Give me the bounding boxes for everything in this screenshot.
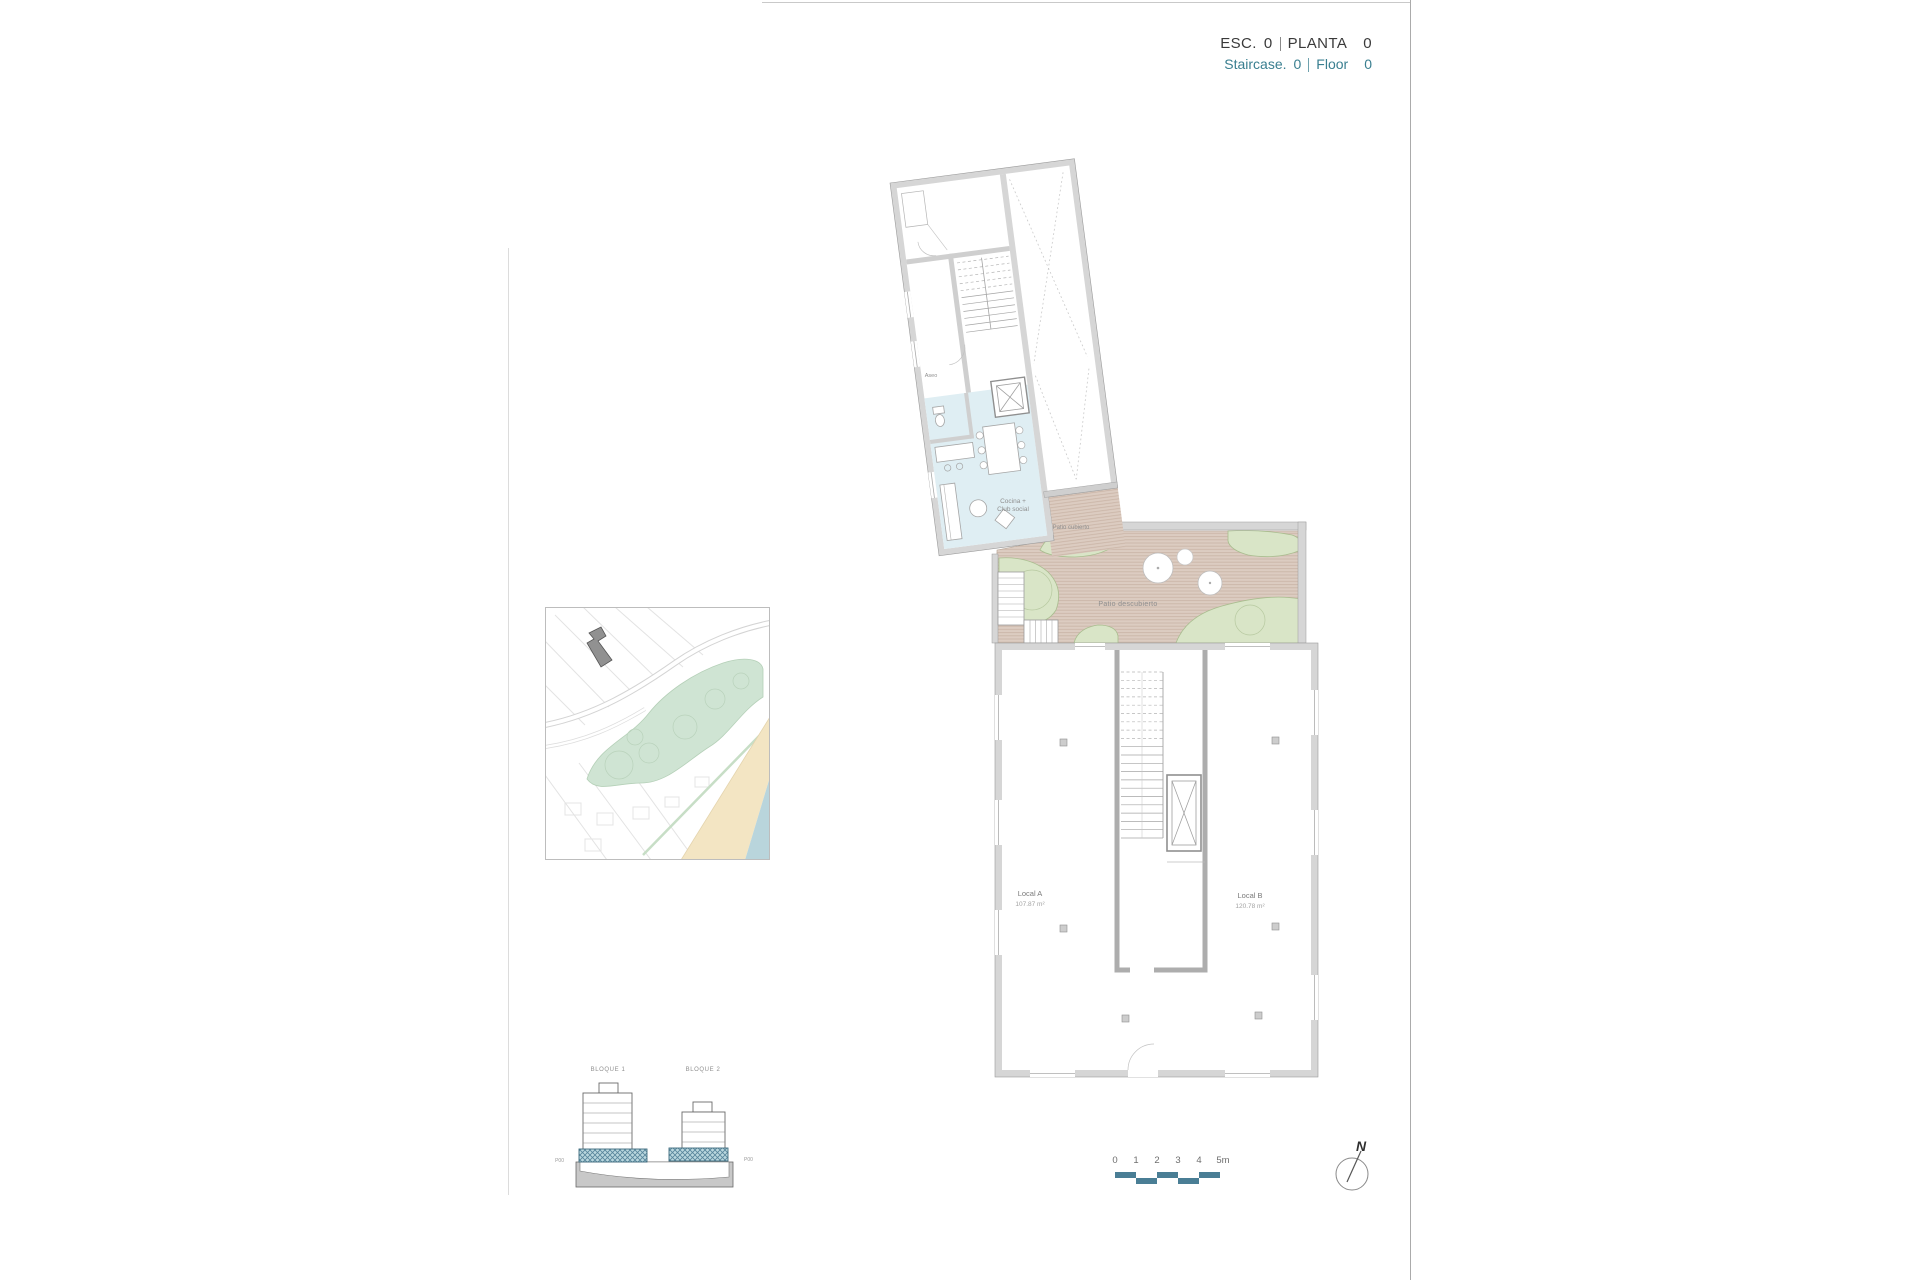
highlighted-floor-band-1 xyxy=(579,1149,647,1162)
label-cocina-2: Club social xyxy=(997,506,1029,513)
core-stair xyxy=(1121,672,1163,838)
title-block: ESC.0PLANTA0 Staircase.0Floor0 xyxy=(1220,35,1372,73)
core-door-gap xyxy=(1130,965,1154,975)
label-bloque-2: BLOQUE 2 xyxy=(686,1067,721,1073)
patio-top-wall xyxy=(1121,522,1306,530)
floor-plan-canvas: Aseo Cocina + Club social Patio cubierto… xyxy=(880,120,1340,1090)
elevator xyxy=(1167,775,1201,851)
scale-bar: 0 1 2 3 4 5m xyxy=(1105,1155,1240,1187)
scale-segment xyxy=(1178,1178,1199,1184)
title-spanish: ESC.0PLANTA0 xyxy=(1220,35,1372,54)
scale-tick: 4 xyxy=(1196,1155,1201,1166)
label-aseo: Aseo xyxy=(925,373,938,379)
label-bloque-1: BLOQUE 1 xyxy=(591,1067,626,1073)
north-label: N xyxy=(1356,1138,1367,1154)
esc-label: ESC. xyxy=(1220,35,1257,54)
patio-left-wall xyxy=(992,554,998,643)
staircase-value: 0 xyxy=(1294,56,1302,74)
label-patio-cubierto: Patio cubierto xyxy=(1053,525,1090,531)
compass-circle xyxy=(1336,1158,1368,1190)
esc-value: 0 xyxy=(1264,35,1273,54)
staircase-label: Staircase. xyxy=(1224,56,1286,74)
floor-label: Floor xyxy=(1316,56,1348,74)
scale-segment xyxy=(1115,1172,1136,1178)
planta-label: PLANTA xyxy=(1288,35,1348,54)
scale-segment xyxy=(1136,1178,1157,1184)
patio-right-wall xyxy=(1298,522,1306,643)
compass-needle xyxy=(1347,1151,1361,1182)
north-compass: N xyxy=(1320,1120,1400,1200)
scale-tick: 3 xyxy=(1175,1155,1180,1166)
dining-table xyxy=(975,422,1028,476)
page-border-right xyxy=(1410,0,1411,1280)
title-divider xyxy=(1280,37,1281,51)
label-local-b-area: 120.78 m² xyxy=(1235,903,1265,910)
scale-tick: 2 xyxy=(1154,1155,1159,1166)
drawing-sheet: ESC.0PLANTA0 Staircase.0Floor0 xyxy=(0,0,1920,1280)
elevation-diagram: BLOQUE 1 BLOQUE 2 P00 P00 xyxy=(540,1048,830,1203)
wing-elevator xyxy=(991,377,1029,417)
scale-tick: 5m xyxy=(1216,1155,1229,1166)
scale-segment xyxy=(1157,1172,1178,1178)
planta-value: 0 xyxy=(1363,35,1372,54)
block-interior xyxy=(1002,650,1311,1070)
label-local-a: Local A xyxy=(1018,889,1043,898)
label-cocina-1: Cocina + xyxy=(1000,498,1026,505)
label-p00-right: P00 xyxy=(744,1157,753,1163)
label-local-a-area: 107.87 m² xyxy=(1015,901,1045,908)
block-1-section xyxy=(583,1083,632,1152)
page-border-left xyxy=(508,248,509,1195)
page-border-top xyxy=(762,2,1411,3)
label-patio-descubierto: Patio descubierto xyxy=(1098,601,1157,608)
scale-tick: 1 xyxy=(1133,1155,1138,1166)
title-divider-teal xyxy=(1308,58,1309,72)
ground-floor-block xyxy=(995,643,1318,1077)
bath-fixture xyxy=(901,191,927,228)
title-english: Staircase.0Floor0 xyxy=(1220,56,1372,74)
scale-segment xyxy=(1199,1172,1220,1178)
block-2-section xyxy=(682,1102,725,1152)
label-local-b: Local B xyxy=(1237,891,1262,900)
label-p00-left: P00 xyxy=(555,1158,564,1164)
patio-cubierto-floor xyxy=(1044,486,1125,557)
highlighted-floor-band-2 xyxy=(669,1148,728,1161)
site-location-map xyxy=(545,607,770,860)
floor-value: 0 xyxy=(1364,56,1372,74)
scale-tick: 0 xyxy=(1112,1155,1117,1166)
